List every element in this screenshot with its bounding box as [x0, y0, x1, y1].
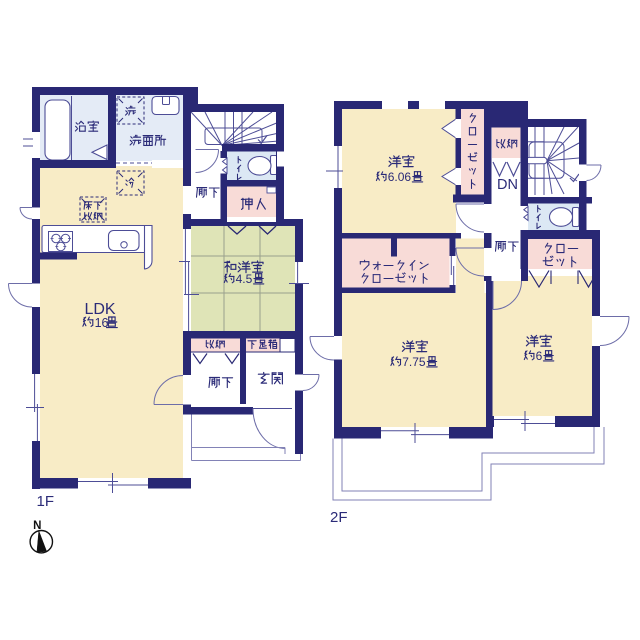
svg-text:DN: DN: [497, 177, 518, 193]
svg-text:1F: 1F: [37, 493, 55, 510]
svg-text:2F: 2F: [330, 509, 348, 526]
svg-text:6: 6: [536, 349, 543, 363]
svg-text:4.5: 4.5: [236, 272, 253, 286]
svg-text:7.75: 7.75: [402, 355, 426, 369]
svg-text:6.06: 6.06: [388, 170, 412, 184]
